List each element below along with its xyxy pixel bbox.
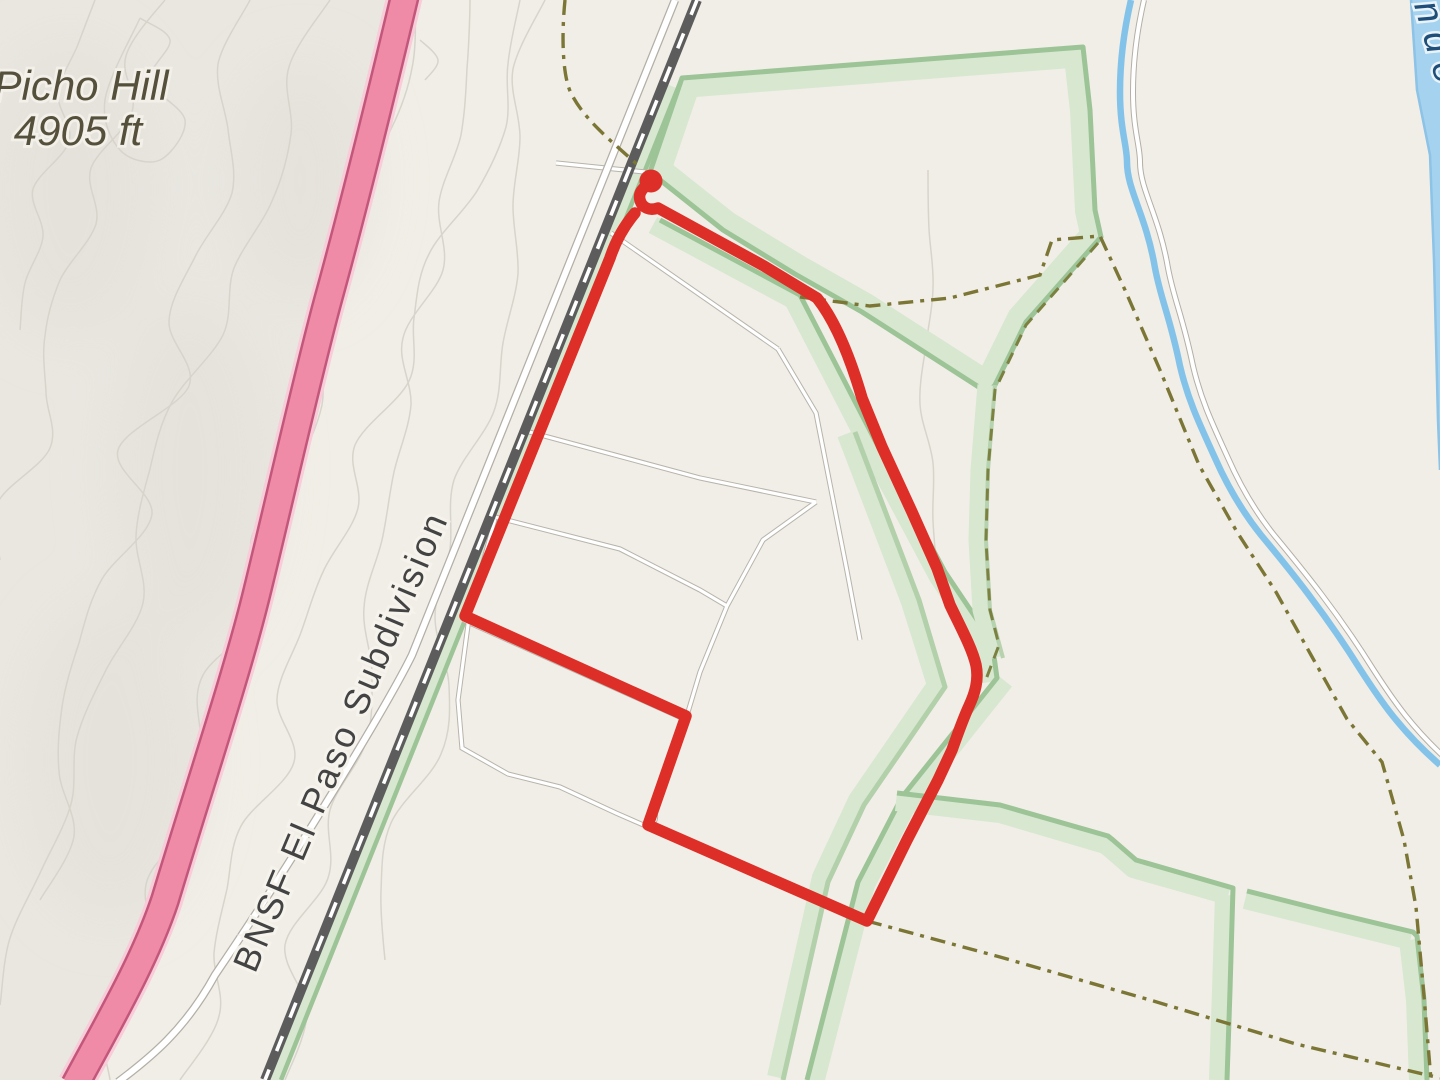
svg-text:4905 ft: 4905 ft	[14, 107, 145, 154]
svg-text:Picho Hill: Picho Hill	[0, 62, 170, 109]
